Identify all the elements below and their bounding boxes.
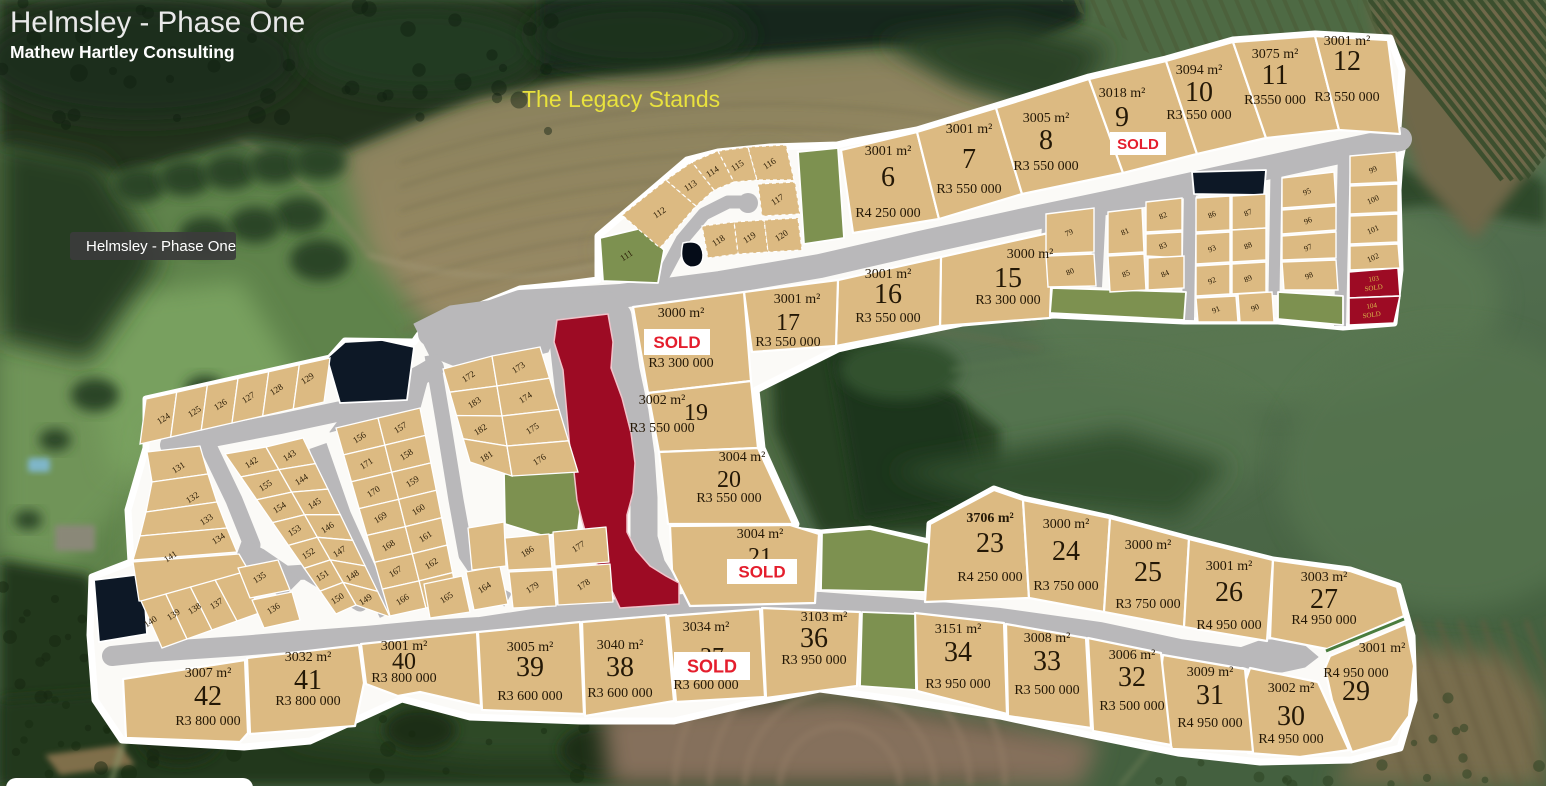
- svg-text:3094 m²: 3094 m²: [1176, 63, 1223, 78]
- svg-text:R3 500 000: R3 500 000: [1099, 699, 1164, 714]
- svg-text:Mathew Hartley Consulting: Mathew Hartley Consulting: [10, 42, 235, 62]
- svg-text:25: 25: [1134, 557, 1162, 588]
- svg-text:SOLD: SOLD: [653, 333, 700, 352]
- svg-text:39: 39: [516, 652, 544, 683]
- svg-text:R3 550 000: R3 550 000: [755, 335, 820, 350]
- svg-text:R4 250 000: R4 250 000: [957, 570, 1022, 585]
- svg-text:3000 m²: 3000 m²: [658, 306, 705, 321]
- svg-text:Helmsley - Phase One: Helmsley - Phase One: [86, 238, 236, 255]
- svg-text:3006 m²: 3006 m²: [1109, 648, 1156, 663]
- svg-text:3003 m²: 3003 m²: [1301, 570, 1348, 585]
- svg-text:33: 33: [1033, 646, 1061, 677]
- svg-text:3001 m²: 3001 m²: [774, 292, 821, 307]
- svg-text:R3550 000: R3550 000: [1244, 93, 1306, 108]
- svg-text:30: 30: [1277, 701, 1305, 732]
- svg-text:3009 m²: 3009 m²: [1187, 665, 1234, 680]
- svg-text:R3 800 000: R3 800 000: [275, 694, 340, 709]
- svg-text:R3 550 000: R3 550 000: [1013, 159, 1078, 174]
- svg-text:24: 24: [1052, 536, 1080, 567]
- svg-text:R3 300 000: R3 300 000: [975, 293, 1040, 308]
- svg-text:9: 9: [1115, 102, 1129, 133]
- svg-text:3040 m²: 3040 m²: [597, 638, 644, 653]
- svg-text:Helmsley - Phase One: Helmsley - Phase One: [10, 6, 305, 39]
- svg-text:3005 m²: 3005 m²: [1023, 111, 1070, 126]
- svg-text:3007 m²: 3007 m²: [185, 666, 232, 681]
- svg-text:3008 m²: 3008 m²: [1024, 631, 1071, 646]
- svg-text:12: 12: [1333, 46, 1361, 77]
- svg-text:SOLD: SOLD: [1117, 136, 1159, 153]
- svg-text:3001 m²: 3001 m²: [1359, 641, 1406, 656]
- svg-text:3000 m²: 3000 m²: [1043, 517, 1090, 532]
- svg-text:R3 600 000: R3 600 000: [497, 689, 562, 704]
- svg-text:SOLD: SOLD: [738, 563, 785, 582]
- svg-text:6: 6: [881, 162, 895, 193]
- svg-text:3032 m²: 3032 m²: [285, 650, 332, 665]
- svg-text:38: 38: [606, 652, 634, 683]
- svg-text:The Legacy Stands: The Legacy Stands: [522, 86, 720, 112]
- svg-text:20: 20: [717, 467, 741, 493]
- svg-text:R3 500 000: R3 500 000: [1014, 683, 1079, 698]
- svg-text:34: 34: [944, 637, 972, 668]
- svg-text:R3 550 000: R3 550 000: [696, 491, 761, 506]
- svg-text:3002 m²: 3002 m²: [1268, 681, 1315, 696]
- svg-text:R3 550 000: R3 550 000: [1314, 90, 1379, 105]
- svg-text:3000 m²: 3000 m²: [1007, 247, 1054, 262]
- svg-text:3001 m²: 3001 m²: [865, 144, 912, 159]
- svg-text:17: 17: [776, 310, 800, 336]
- svg-text:104: 104: [1366, 301, 1378, 310]
- svg-text:R4 950 000: R4 950 000: [1196, 618, 1261, 633]
- svg-text:R4 950 000: R4 950 000: [1258, 732, 1323, 747]
- svg-text:R3 950 000: R3 950 000: [925, 677, 990, 692]
- svg-text:3002 m²: 3002 m²: [639, 393, 686, 408]
- svg-text:R4 950 000: R4 950 000: [1177, 716, 1242, 731]
- svg-text:36: 36: [800, 623, 828, 654]
- svg-text:7: 7: [962, 144, 976, 175]
- svg-text:R3 600 000: R3 600 000: [673, 678, 738, 693]
- svg-text:11: 11: [1262, 60, 1289, 91]
- svg-text:R4 950 000: R4 950 000: [1291, 613, 1356, 628]
- svg-text:3034 m²: 3034 m²: [683, 620, 730, 635]
- svg-text:3004 m²: 3004 m²: [719, 450, 766, 465]
- svg-text:42: 42: [194, 681, 222, 712]
- svg-text:R3 800 000: R3 800 000: [371, 671, 436, 686]
- svg-text:R3 800 000: R3 800 000: [175, 714, 240, 729]
- svg-text:16: 16: [874, 279, 902, 310]
- svg-text:10: 10: [1185, 77, 1213, 108]
- svg-text:15: 15: [994, 263, 1022, 294]
- svg-text:R3 550 000: R3 550 000: [936, 182, 1001, 197]
- svg-text:R3 550 000: R3 550 000: [855, 311, 920, 326]
- svg-text:R3 750 000: R3 750 000: [1033, 579, 1098, 594]
- svg-text:3018 m²: 3018 m²: [1099, 86, 1146, 101]
- svg-text:3004 m²: 3004 m²: [737, 527, 784, 542]
- svg-text:R3 550 000: R3 550 000: [1166, 108, 1231, 123]
- svg-text:3001 m²: 3001 m²: [946, 122, 993, 137]
- svg-text:3001 m²: 3001 m²: [1206, 559, 1253, 574]
- svg-text:R4 250 000: R4 250 000: [855, 206, 920, 221]
- svg-text:R3 300 000: R3 300 000: [648, 356, 713, 371]
- svg-text:32: 32: [1118, 662, 1146, 693]
- svg-text:SOLD: SOLD: [687, 656, 737, 676]
- svg-text:23: 23: [976, 528, 1004, 559]
- svg-text:R3 750 000: R3 750 000: [1115, 597, 1180, 612]
- svg-text:103: 103: [1368, 274, 1380, 283]
- svg-text:8: 8: [1039, 125, 1053, 156]
- svg-text:R3 950 000: R3 950 000: [781, 653, 846, 668]
- svg-text:R4 950 000: R4 950 000: [1323, 666, 1388, 681]
- svg-text:41: 41: [294, 665, 322, 696]
- svg-text:3706 m²: 3706 m²: [966, 511, 1013, 526]
- svg-text:27: 27: [1310, 584, 1338, 615]
- svg-text:3000 m²: 3000 m²: [1125, 538, 1172, 553]
- svg-text:26: 26: [1215, 577, 1243, 608]
- svg-text:31: 31: [1196, 680, 1224, 711]
- svg-text:R3 600 000: R3 600 000: [587, 686, 652, 701]
- svg-text:3151 m²: 3151 m²: [935, 622, 982, 637]
- svg-text:19: 19: [684, 400, 708, 426]
